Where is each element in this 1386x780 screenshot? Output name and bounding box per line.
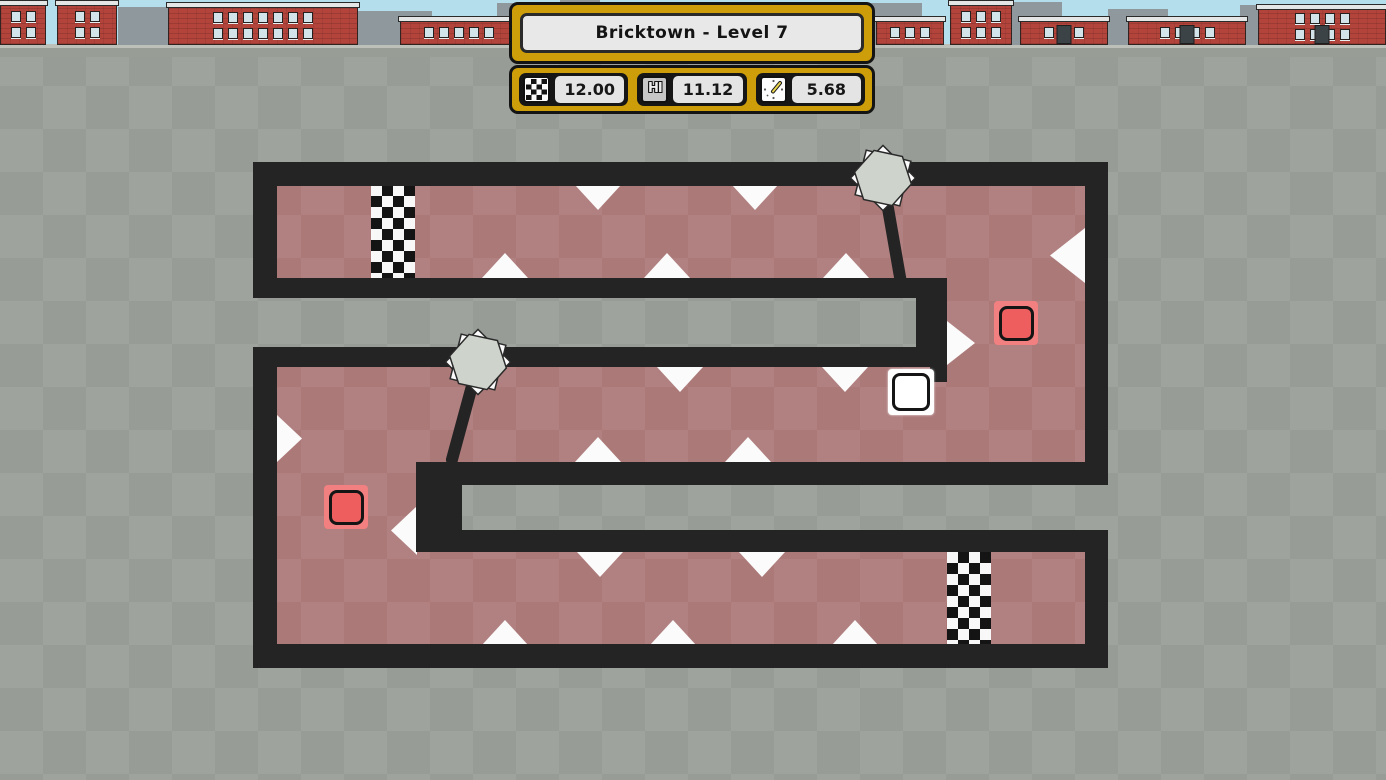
building-window	[424, 27, 434, 38]
brick-building	[950, 3, 1012, 45]
saw-blade	[436, 320, 520, 404]
building-window	[1295, 29, 1305, 40]
building-window	[1160, 27, 1170, 38]
building-window	[258, 28, 268, 39]
maze	[0, 0, 1386, 780]
finish-time-value: 12.00	[555, 76, 624, 103]
building-window	[11, 27, 21, 38]
building-window	[439, 27, 449, 38]
building-window	[469, 27, 479, 38]
building-window	[11, 11, 21, 22]
wall-segment	[416, 530, 1108, 552]
stat-high-score: HI 11.12	[637, 73, 746, 106]
brick-building	[57, 3, 117, 45]
wall-segment	[253, 347, 947, 367]
checker-pattern	[526, 79, 547, 100]
player-square[interactable]	[888, 369, 934, 415]
level-hud: Bricktown - Level 7 12.00 HI 11.12	[509, 2, 875, 114]
wall-segment	[253, 644, 1108, 668]
level-title: Bricktown - Level 7	[520, 13, 864, 53]
building-window	[1310, 13, 1320, 24]
building-window	[961, 27, 971, 38]
finish-zone	[947, 552, 991, 644]
building-window	[1325, 13, 1335, 24]
brick-building	[1128, 19, 1246, 45]
building-window	[976, 11, 986, 22]
building-window	[991, 27, 1001, 38]
saw-blade	[841, 136, 925, 220]
building-windows	[951, 4, 1011, 44]
building-window	[976, 27, 986, 38]
building-window	[1340, 29, 1350, 40]
building-window	[273, 28, 283, 39]
building-window	[26, 11, 36, 22]
finish-zone	[371, 185, 415, 278]
wall-segment	[416, 462, 1108, 485]
stat-timer: 5.68	[756, 73, 865, 106]
building-window	[1340, 13, 1350, 24]
building-door	[1057, 25, 1072, 44]
building-window	[1044, 27, 1054, 38]
player-square-inner	[892, 373, 930, 411]
building-window	[90, 11, 100, 22]
building-window	[213, 28, 223, 39]
building-window	[920, 27, 930, 38]
building-window	[890, 27, 900, 38]
building-window	[961, 11, 971, 22]
building-windows	[169, 6, 357, 44]
wall-segment	[916, 278, 947, 367]
brick-building	[1020, 19, 1108, 45]
building-window	[303, 28, 313, 39]
brick-building	[400, 19, 518, 45]
stat-finish-time: 12.00	[519, 73, 628, 106]
building-windows	[877, 20, 943, 44]
building-window	[273, 12, 283, 23]
building-windows	[58, 4, 116, 44]
wall-segment	[253, 278, 947, 298]
timer-icon	[760, 76, 787, 103]
building-window	[228, 28, 238, 39]
building-window	[75, 27, 85, 38]
hazard-square-inner	[999, 306, 1034, 341]
hazard-square	[994, 301, 1038, 345]
wall-segment	[416, 462, 462, 552]
brick-building	[0, 3, 46, 45]
hazard-square-inner	[329, 490, 364, 525]
high-score-icon: HI	[641, 76, 668, 103]
timer-value: 5.68	[792, 76, 861, 103]
brick-building	[876, 19, 944, 45]
building-window	[1295, 13, 1305, 24]
building-window	[905, 27, 915, 38]
building-window	[243, 28, 253, 39]
building-window	[484, 27, 494, 38]
finish-flag-icon	[523, 76, 550, 103]
brick-building	[168, 5, 358, 45]
building-window	[303, 12, 313, 23]
building-window	[1205, 27, 1215, 38]
building-window	[991, 11, 1001, 22]
building-door	[1315, 25, 1330, 44]
building-window	[213, 12, 223, 23]
building-window	[243, 12, 253, 23]
building-door	[1180, 25, 1195, 44]
high-score-value: 11.12	[673, 76, 742, 103]
building-windows	[1, 4, 45, 44]
building-window	[1074, 27, 1084, 38]
building-window	[288, 28, 298, 39]
building-window	[288, 12, 298, 23]
stats-panel: 12.00 HI 11.12	[509, 65, 875, 114]
game-scene[interactable]: Bricktown - Level 7 12.00 HI 11.12	[0, 0, 1386, 780]
building-windows	[401, 20, 517, 44]
hazard-square	[324, 485, 368, 529]
building-window	[26, 27, 36, 38]
brick-building	[1258, 7, 1386, 45]
title-panel: Bricktown - Level 7	[509, 2, 875, 64]
building-window	[90, 27, 100, 38]
building-window	[258, 12, 268, 23]
wall-segment	[253, 162, 1108, 186]
building-window	[454, 27, 464, 38]
building-window	[228, 12, 238, 23]
wall-segment	[1085, 162, 1108, 485]
building-window	[75, 11, 85, 22]
wall-segment	[253, 347, 277, 668]
